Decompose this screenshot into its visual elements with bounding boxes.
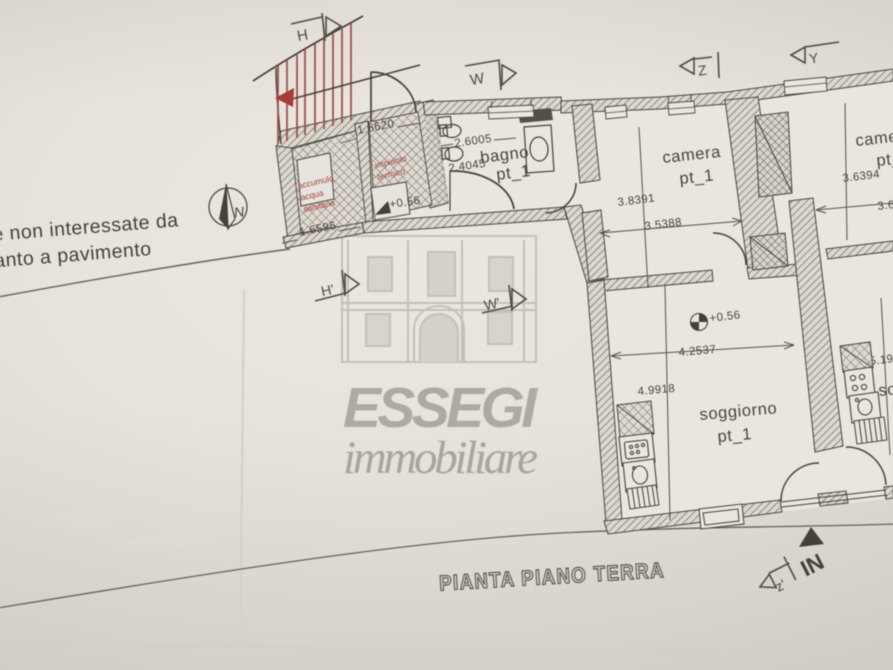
svg-text:sog: sog — [878, 379, 893, 400]
svg-text:e non interessate da: e non interessate da — [0, 209, 179, 246]
svg-text:immobiliare: immobiliare — [343, 432, 538, 484]
svg-text:IN: IN — [797, 549, 828, 581]
svg-text:W: W — [469, 70, 487, 89]
svg-text:H': H' — [319, 281, 335, 299]
svg-text:z': z' — [772, 576, 788, 595]
svg-text:ESSEGI: ESSEGI — [343, 376, 538, 440]
svg-text:pt_1: pt_1 — [717, 425, 753, 446]
svg-text:Z: Z — [697, 62, 708, 79]
svg-text:H: H — [296, 26, 310, 45]
svg-text:W': W' — [482, 294, 501, 313]
svg-text:N: N — [233, 203, 246, 220]
svg-text:pt_1: pt_1 — [876, 148, 893, 170]
svg-text:pt_1: pt_1 — [679, 166, 715, 188]
svg-text:PIANTA PIANO TERRA: PIANTA PIANO TERRA — [438, 558, 665, 595]
svg-text:Y: Y — [808, 49, 820, 66]
